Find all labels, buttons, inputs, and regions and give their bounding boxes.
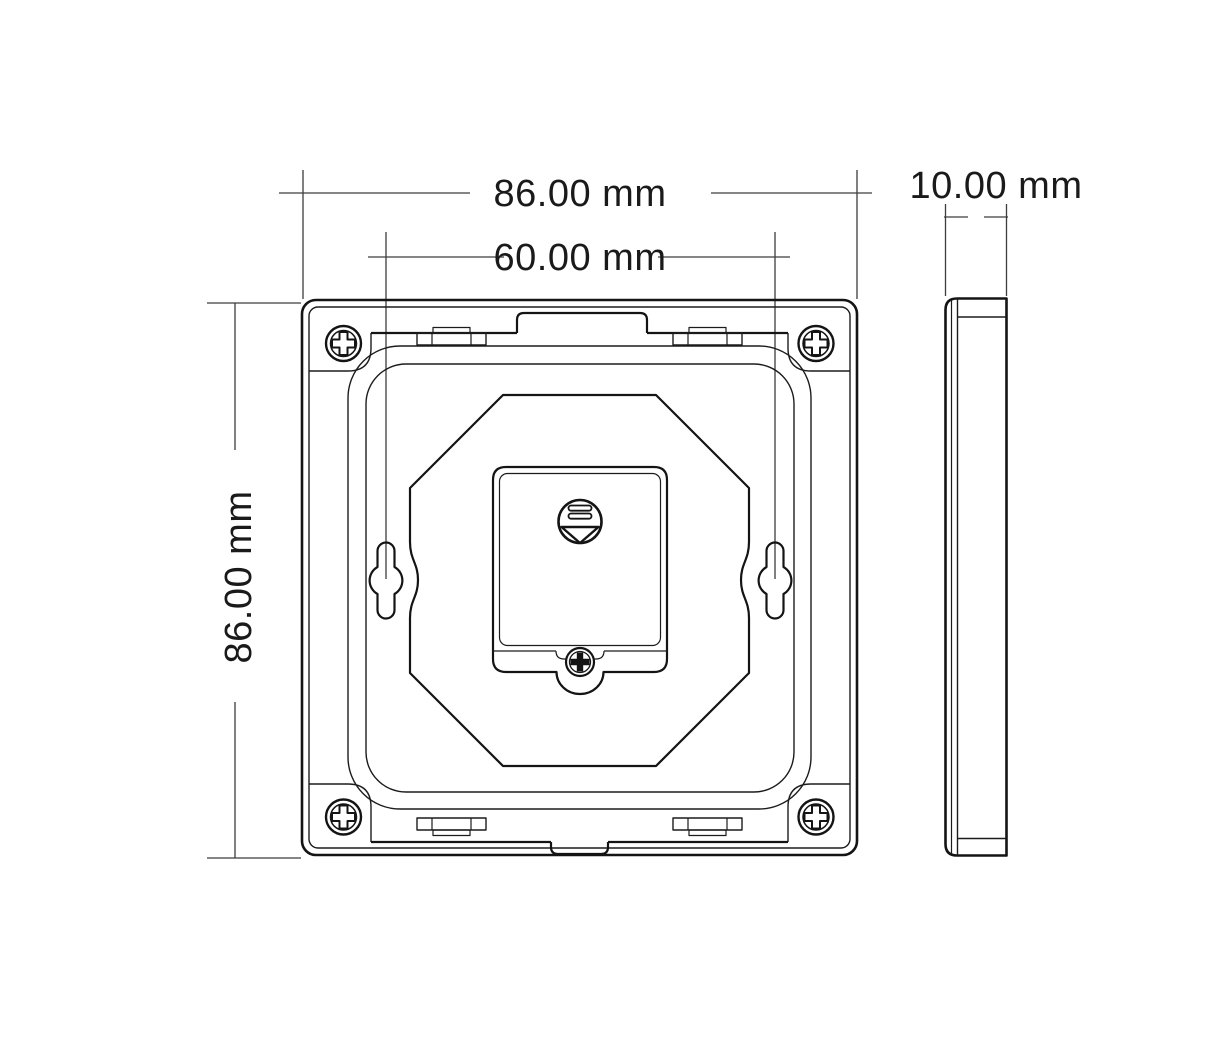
cover-screw	[566, 648, 594, 676]
dimension-label-side-depth: 10.00 mm	[910, 165, 1083, 207]
dimension-label-left-height: 86.00 mm	[218, 491, 260, 664]
top-tab	[517, 313, 647, 333]
mounting-clip-top-left	[417, 328, 486, 346]
dimension-top-width: 86.00 mm	[279, 170, 872, 299]
corner-screw-top-right	[799, 326, 834, 361]
front-view	[302, 300, 857, 855]
corner-screw-bottom-left	[326, 800, 361, 835]
battery-cover	[493, 467, 667, 694]
dimension-left-height: 86.00 mm	[207, 303, 301, 858]
octagon-module-outline	[410, 395, 749, 766]
dimension-label-top-width: 86.00 mm	[494, 173, 667, 215]
corner-screw-top-left	[326, 326, 361, 361]
side-profile-outline	[946, 299, 1007, 856]
release-button	[559, 500, 602, 543]
side-view	[946, 299, 1007, 856]
drawing-canvas: 86.00 mm 60.00 mm 86.00 mm 10.00 mm	[0, 0, 1226, 1049]
mounting-clip-bottom-right	[673, 818, 742, 836]
dimension-label-hole-spacing: 60.00 mm	[494, 237, 667, 279]
mounting-clip-bottom-left	[417, 818, 486, 836]
mounting-clip-top-right	[673, 328, 742, 346]
outer-frame	[302, 300, 857, 855]
dimension-side-depth: 10.00 mm	[910, 165, 1083, 296]
back-plate-inner-outline	[366, 364, 794, 792]
corner-screw-bottom-right	[799, 800, 834, 835]
technical-drawing: 86.00 mm 60.00 mm 86.00 mm 10.00 mm	[0, 0, 1226, 1049]
